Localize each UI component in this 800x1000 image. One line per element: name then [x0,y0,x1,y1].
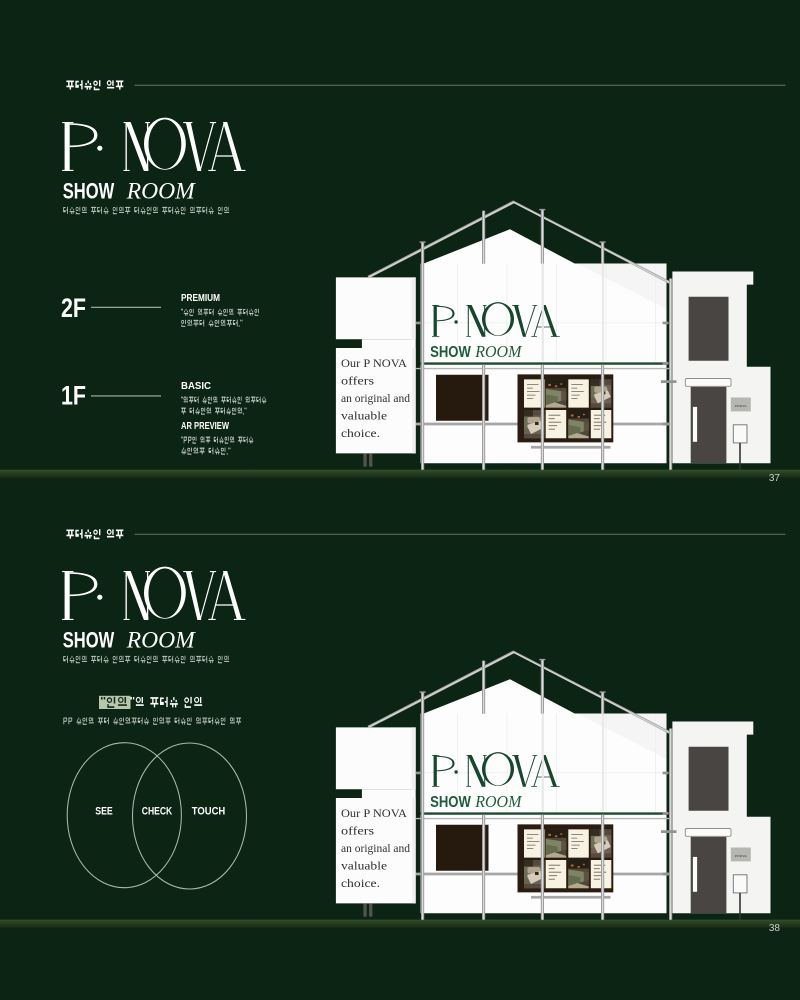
svg-text:1F: 1F [61,379,86,410]
svg-text:PREMIUM: PREMIUM [181,292,220,304]
svg-text:SEE: SEE [95,806,113,818]
svg-text:37: 37 [769,473,781,484]
svg-text:BASIC: BASIC [181,380,211,392]
svg-text:2F: 2F [61,292,86,323]
svg-text:TOUCH: TOUCH [192,806,226,818]
svg-text:38: 38 [769,923,781,934]
svg-text:CHECK: CHECK [142,806,173,818]
svg-text:AR PREVIEW: AR PREVIEW [181,420,229,432]
